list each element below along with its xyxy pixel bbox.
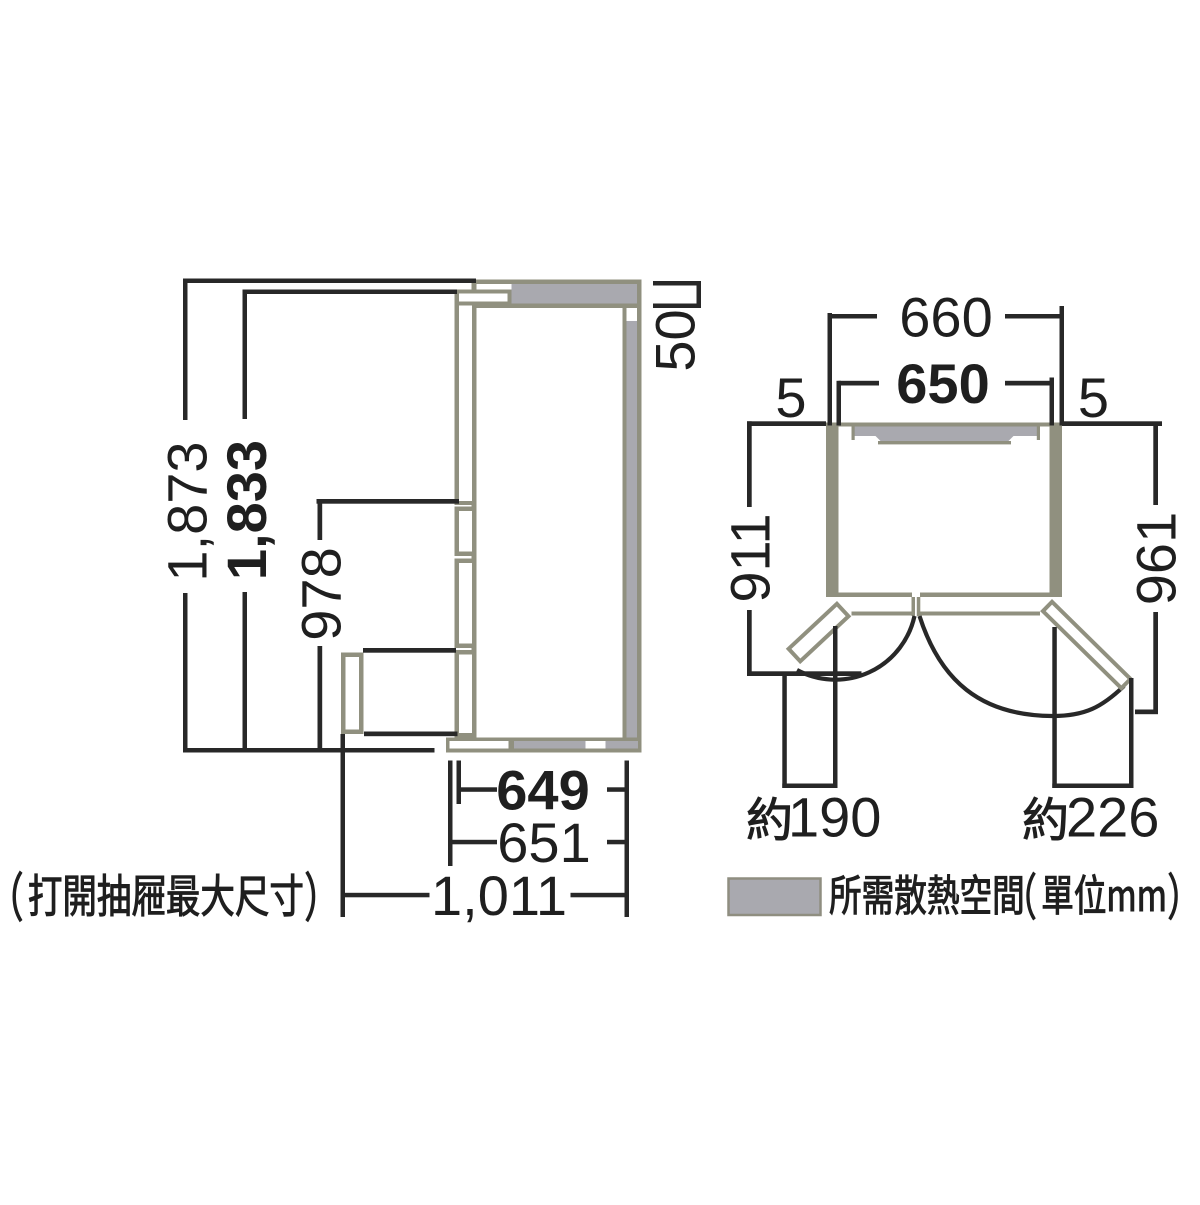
svg-text:1,833: 1,833 xyxy=(215,440,278,580)
svg-text:911: 911 xyxy=(718,513,781,602)
svg-text:226: 226 xyxy=(1066,786,1159,849)
svg-text:1,873: 1,873 xyxy=(156,441,219,581)
svg-text:1,011: 1,011 xyxy=(431,864,567,927)
svg-text:961: 961 xyxy=(1125,512,1188,605)
svg-text:190: 190 xyxy=(788,786,881,849)
svg-text:978: 978 xyxy=(290,547,353,640)
svg-text:650: 650 xyxy=(896,352,989,415)
svg-text:5: 5 xyxy=(775,366,806,429)
svg-text:50: 50 xyxy=(644,309,707,371)
svg-text:5: 5 xyxy=(1078,366,1109,429)
svg-text:660: 660 xyxy=(899,285,992,348)
